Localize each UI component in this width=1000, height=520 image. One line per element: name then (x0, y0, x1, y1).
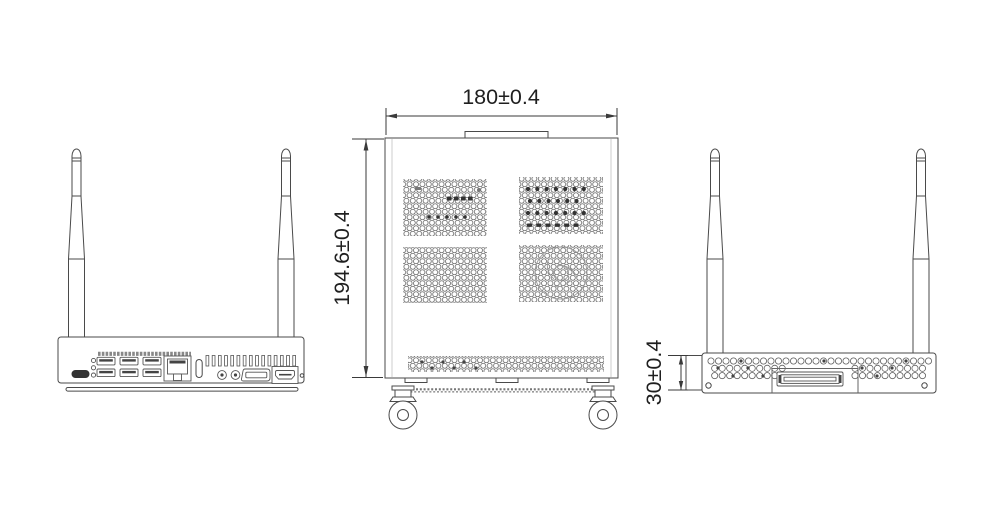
dimension-depth-label: 30±0.4 (642, 340, 666, 406)
dimension-width-label: 180±0.4 (462, 85, 540, 109)
perforated-vent-zone (403, 247, 487, 303)
antenna (278, 149, 294, 339)
drawing-canvas: 180±0.4 194.6±0.4 30±0.4 (0, 0, 1000, 520)
power-connector (72, 371, 89, 378)
antenna (69, 149, 85, 339)
antenna (913, 149, 929, 356)
rear-view (686, 149, 936, 393)
ops-connector (777, 372, 843, 386)
dimension-height: 194.6±0.4 (330, 139, 384, 378)
displayport-connector (241, 369, 270, 381)
base-plate-edge (66, 388, 298, 392)
antenna (707, 149, 723, 356)
perforated-vent-zone (519, 245, 603, 302)
hdmi-connector (272, 367, 298, 384)
vent-grille (206, 356, 296, 367)
technical-drawing: 180±0.4 194.6±0.4 30±0.4 (0, 0, 1000, 520)
side-flange (686, 356, 703, 391)
front-view (58, 149, 304, 391)
perforated-vent-strip (408, 356, 604, 372)
dimension-depth: 30±0.4 (642, 340, 688, 406)
caster-wheel (389, 386, 417, 429)
dimension-width: 180±0.4 (386, 85, 617, 135)
top-view (385, 132, 618, 430)
ethernet-port (164, 356, 191, 381)
bottom-tabs (405, 378, 609, 383)
status-leds (91, 358, 95, 377)
dimension-height-label: 194.6±0.4 (330, 210, 354, 306)
